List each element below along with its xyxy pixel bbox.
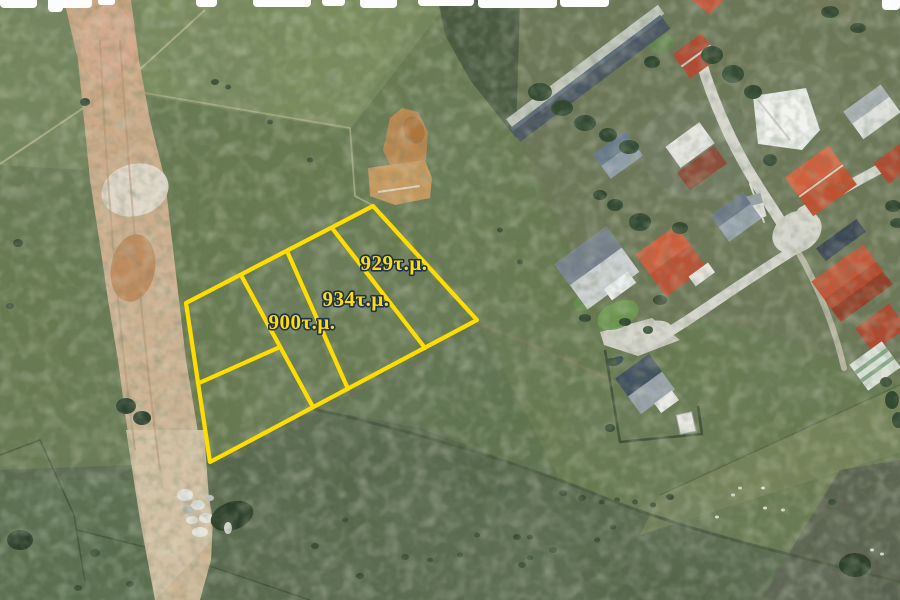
parcel-area-label: 900τ.μ. — [268, 310, 335, 334]
parcel-area-label: 929τ.μ. — [360, 251, 427, 275]
photo-grain — [0, 0, 900, 600]
parcel-area-label: 934τ.μ. — [322, 287, 389, 311]
satellite-map: 929τ.μ. 934τ.μ. 900τ.μ. — [0, 0, 900, 600]
satellite-image: 929τ.μ. 934τ.μ. 900τ.μ. — [0, 0, 900, 600]
